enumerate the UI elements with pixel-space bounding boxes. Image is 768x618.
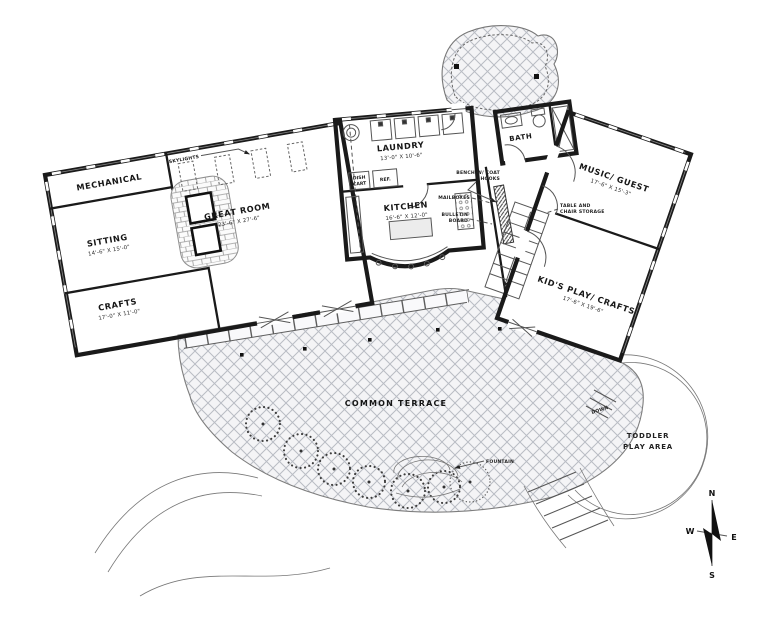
bench-label-1: BENCH W/ COAT — [456, 170, 500, 176]
wing-right: MUSIC/ GUEST 17'-6" X 15'-3" KID'S PLAY/… — [490, 110, 691, 366]
bath-block: BATH — [495, 102, 577, 168]
toddler-label-2: PLAY AREA — [623, 443, 673, 451]
fountain-label: FOUNTAIN — [486, 459, 514, 465]
compass-east: E — [731, 533, 736, 542]
storage-label-2: CHAIR STORAGE — [560, 209, 605, 215]
compass-rose: N S W E — [686, 489, 737, 580]
mailboxes-label: MAILBOXES — [438, 195, 470, 201]
storage-label-1: TABLE AND — [560, 203, 591, 209]
toddler-label-1: TODDLER — [627, 432, 670, 440]
room-label-laundry: LAUNDRY — [376, 139, 425, 153]
patio-post — [534, 74, 539, 79]
toilet — [532, 114, 546, 128]
compass-south: S — [709, 571, 715, 580]
compass-north: N — [709, 489, 716, 498]
bulletin-label-1: BULLETIN — [441, 212, 468, 218]
patio-post — [454, 64, 459, 69]
firebox — [191, 224, 220, 255]
common-terrace-label: COMMON TERRACE — [345, 399, 447, 408]
room-label-bath: BATH — [509, 132, 533, 143]
room-label-kids-play: KID'S PLAY/ CRAFTS — [536, 274, 636, 317]
floor-plan-page: SKYLIGHTS MECHANICAL SITTING 14'-6" X 15… — [0, 0, 768, 618]
kitchen-island — [389, 218, 432, 240]
room-label-kitchen: KITCHEN — [383, 199, 428, 213]
wing-center: DISH CART REF. LAUNDRY 13'-0" X 10'-6" K… — [334, 102, 485, 274]
bulletin-label-2: BOARD — [449, 218, 468, 224]
bench-label-2: HOOKS — [480, 176, 500, 182]
compass-west: W — [686, 527, 695, 536]
floor-plan-drawing: SKYLIGHTS MECHANICAL SITTING 14'-6" X 15… — [0, 0, 768, 618]
refrigerator-label: REF. — [380, 176, 392, 183]
room-label-mechanical: MECHANICAL — [76, 171, 143, 192]
room-dims-laundry: 13'-0" X 10'-6" — [380, 153, 423, 163]
skylights-label: SKYLIGHTS — [168, 154, 199, 165]
